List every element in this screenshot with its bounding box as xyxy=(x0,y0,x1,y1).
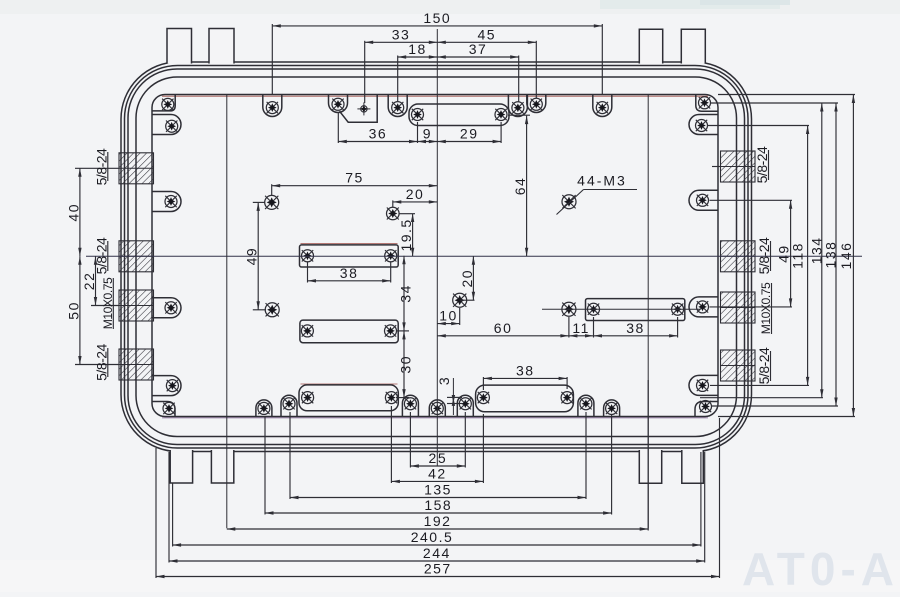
svg-text:30: 30 xyxy=(398,355,414,374)
svg-text:10: 10 xyxy=(439,308,458,324)
svg-text:42: 42 xyxy=(428,465,447,481)
svg-text:75: 75 xyxy=(345,170,364,186)
svg-text:25: 25 xyxy=(429,450,448,466)
svg-text:3: 3 xyxy=(436,376,452,385)
svg-text:49: 49 xyxy=(244,247,260,266)
svg-text:37: 37 xyxy=(469,41,488,57)
svg-text:29: 29 xyxy=(460,126,479,142)
svg-text:20: 20 xyxy=(406,186,425,202)
svg-text:38: 38 xyxy=(340,265,359,281)
svg-text:44-M3: 44-M3 xyxy=(577,173,627,189)
svg-text:192: 192 xyxy=(424,513,452,529)
svg-text:19.5: 19.5 xyxy=(398,218,414,251)
svg-text:18: 18 xyxy=(408,41,427,57)
svg-text:158: 158 xyxy=(424,497,452,513)
svg-text:135: 135 xyxy=(424,482,452,498)
svg-text:5/8-24: 5/8-24 xyxy=(756,347,772,384)
svg-text:118: 118 xyxy=(790,242,806,269)
svg-text:138: 138 xyxy=(823,241,839,269)
svg-text:5/8-24: 5/8-24 xyxy=(756,237,772,274)
svg-text:64: 64 xyxy=(512,177,528,196)
svg-text:240.5: 240.5 xyxy=(411,529,454,545)
svg-text:11: 11 xyxy=(572,320,590,336)
svg-text:150: 150 xyxy=(423,10,451,26)
svg-text:244: 244 xyxy=(423,545,451,561)
svg-text:50: 50 xyxy=(65,301,81,320)
svg-text:36: 36 xyxy=(369,126,388,142)
svg-text:34: 34 xyxy=(398,284,414,303)
svg-text:9: 9 xyxy=(423,126,432,142)
svg-text:AT0-A: AT0-A xyxy=(742,543,899,592)
svg-text:5/8-24: 5/8-24 xyxy=(93,148,109,185)
svg-text:45: 45 xyxy=(478,26,497,42)
svg-text:60: 60 xyxy=(494,320,513,336)
svg-text:38: 38 xyxy=(516,362,535,378)
svg-text:M10X0.75: M10X0.75 xyxy=(759,282,773,334)
svg-text:20: 20 xyxy=(459,269,475,288)
svg-text:257: 257 xyxy=(424,561,452,577)
svg-text:5/8-24: 5/8-24 xyxy=(93,343,109,380)
svg-text:146: 146 xyxy=(838,242,854,270)
svg-text:40: 40 xyxy=(65,203,81,222)
svg-text:38: 38 xyxy=(626,320,645,336)
svg-text:5/8-24: 5/8-24 xyxy=(93,237,109,274)
svg-text:5/8-24: 5/8-24 xyxy=(754,146,770,183)
svg-text:M10X0.75: M10X0.75 xyxy=(101,277,115,329)
svg-text:33: 33 xyxy=(392,26,411,42)
